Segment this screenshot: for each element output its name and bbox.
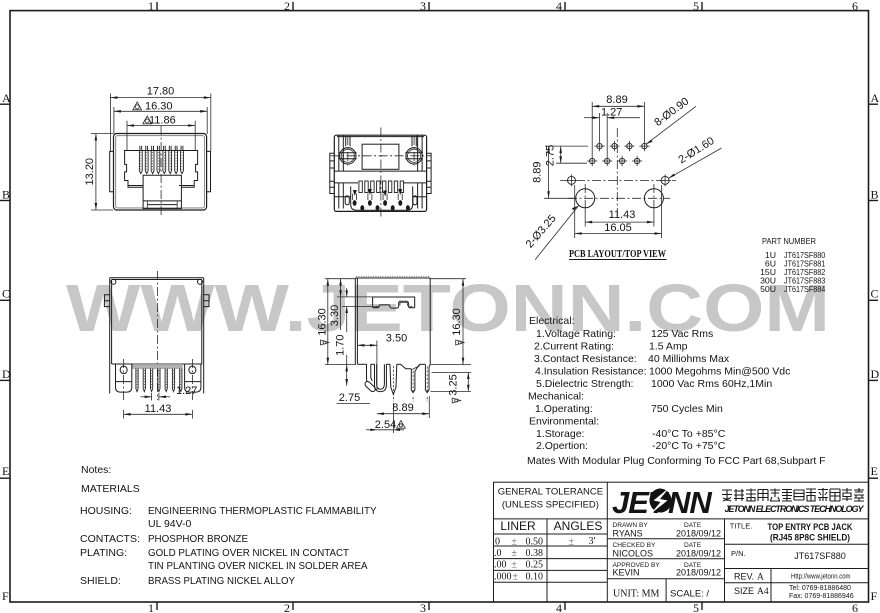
svg-text:1000 Vac Rms 60Hz,1Min: 1000 Vac Rms 60Hz,1Min [651,378,772,390]
svg-text:(UNLESS SPECIFIED): (UNLESS SPECIFIED) [502,500,599,511]
svg-text:CONTACTS:: CONTACTS: [80,533,140,545]
svg-text:Electrical:: Electrical: [529,315,575,327]
svg-text:Notes:: Notes: [81,464,111,476]
svg-text:Mechanical:: Mechanical: [528,391,584,403]
svg-text:E: E [871,464,878,478]
svg-text:C: C [871,287,879,301]
svg-text:NN: NN [668,485,712,520]
svg-text:16.05: 16.05 [604,222,632,234]
svg-text:3.Contact Resistance:: 3.Contact Resistance: [534,353,637,365]
svg-text:Http://www.jetonn.com: Http://www.jetonn.com [791,574,851,581]
svg-text:16.30: 16.30 [451,308,463,336]
svg-text:GENERAL TOLERANCE: GENERAL TOLERANCE [498,487,603,498]
svg-text:TITLE.: TITLE. [730,522,753,531]
svg-text:3.50: 3.50 [386,333,407,345]
svg-text:SIZE: SIZE [734,586,754,596]
svg-text:8.89: 8.89 [532,161,544,182]
svg-text:13.20: 13.20 [84,158,96,186]
svg-text:11.43: 11.43 [145,403,172,415]
svg-text:2018/09/12: 2018/09/12 [676,568,721,578]
svg-text:-20°C To +75°C: -20°C To +75°C [652,440,726,452]
svg-text:1.Operating:: 1.Operating: [535,403,593,415]
svg-text:.00: .00 [494,560,507,571]
svg-text:11.86: 11.86 [149,114,176,126]
svg-text:±: ± [513,572,519,583]
svg-text:-40°C To +85°C: -40°C To +85°C [652,428,726,440]
svg-text:1.Storage:: 1.Storage: [536,428,584,440]
svg-text:3.25: 3.25 [448,374,460,395]
svg-text:MATERIALS: MATERIALS [81,483,140,495]
svg-text:±: ± [511,548,517,559]
svg-text:NICOLOS: NICOLOS [613,549,654,559]
svg-text:UNIT: MM: UNIT: MM [613,589,660,600]
svg-text:±: ± [511,537,517,548]
svg-text:0.38: 0.38 [526,548,544,559]
svg-text:ENGINEERING THERMOPLASTIC FLAM: ENGINEERING THERMOPLASTIC FLAMMABILITY [148,505,377,517]
svg-text:Tel: 0769-81886480: Tel: 0769-81886480 [789,585,851,592]
svg-text:50U: 50U [760,284,776,294]
svg-text:1.70: 1.70 [335,334,347,355]
svg-text:8.89: 8.89 [392,402,413,414]
svg-text:2: 2 [284,601,290,613]
svg-text:2.54: 2.54 [375,419,396,431]
svg-text:0.50: 0.50 [526,537,544,548]
svg-text:4: 4 [556,601,562,613]
svg-text:RYANS: RYANS [613,529,643,539]
svg-text:F: F [2,589,9,603]
svg-text:2018/09/12: 2018/09/12 [676,549,721,559]
svg-text:GOLD PLATING OVER NICKEL IN CO: GOLD PLATING OVER NICKEL IN CONTACT [148,547,350,559]
svg-text:1: 1 [148,601,154,613]
svg-text:Mates With Modular Plug Confor: Mates With Modular Plug Conforming To FC… [527,455,826,467]
svg-text:F: F [871,589,878,603]
svg-text:750 Cycles Min: 750 Cycles Min [651,403,723,415]
svg-text:BRASS PLATING NICKEL ALLOY: BRASS PLATING NICKEL ALLOY [148,575,295,587]
svg-text:B: B [2,188,10,202]
svg-text:4: 4 [556,0,562,13]
svg-text:16.30: 16.30 [316,308,328,336]
svg-text:2018/09/12: 2018/09/12 [676,529,721,539]
svg-text:1.Voltage Rating:: 1.Voltage Rating: [536,328,616,340]
svg-text:WWW.JETONN.COM: WWW.JETONN.COM [66,271,830,346]
svg-text:(RJ45 8P8C SHIELD): (RJ45 8P8C SHIELD) [770,533,850,543]
svg-text:KEVIN: KEVIN [613,568,640,578]
svg-text:TOP ENTRY PCB JACK: TOP ENTRY PCB JACK [768,522,853,532]
svg-text:1.27: 1.27 [176,385,197,397]
svg-text:A: A [871,91,880,105]
svg-text:PCB LAYOUT/TOP VIEW: PCB LAYOUT/TOP VIEW [569,249,666,260]
svg-text:1.5 Amp: 1.5 Amp [649,341,688,353]
svg-text:TIN PLANTING OVER NICKEL IN SO: TIN PLANTING OVER NICKEL IN SOLDER AREA [148,560,368,572]
svg-text:0.25: 0.25 [526,560,544,571]
svg-text:6: 6 [852,0,858,13]
svg-text:±: ± [569,537,575,548]
svg-text:1.27: 1.27 [601,106,622,118]
svg-text:125 Vac Rms: 125 Vac Rms [651,328,713,340]
svg-text:JT617SF880: JT617SF880 [794,551,846,561]
svg-text:2: 2 [284,0,290,13]
svg-text:A: A [757,573,764,583]
svg-text:3′: 3′ [589,536,596,547]
svg-text:JT617SF884: JT617SF884 [784,284,825,294]
svg-text:SHIELD:: SHIELD: [80,575,121,587]
svg-text:SCALE: /: SCALE: / [670,589,709,600]
svg-text:11.43: 11.43 [609,209,636,221]
svg-text:1000 Megohms Min@500 Vdc: 1000 Megohms Min@500 Vdc [649,366,790,378]
svg-text:5.Dielectric Strength:: 5.Dielectric Strength: [536,378,633,390]
svg-text:0.10: 0.10 [526,572,544,583]
svg-text:UL 94V-0: UL 94V-0 [148,518,192,530]
svg-text:4.Insulation Resistance:: 4.Insulation Resistance: [535,366,646,378]
svg-text:2.Current Rating:: 2.Current Rating: [534,341,614,353]
svg-text:5: 5 [693,601,699,613]
svg-text:REV.: REV. [734,572,754,582]
svg-text:D: D [2,367,11,381]
svg-text:LINER: LINER [500,519,536,533]
svg-text:D: D [871,367,880,381]
svg-text:B: B [871,188,879,202]
svg-text:2.75: 2.75 [545,145,557,166]
svg-text:Environmental:: Environmental: [529,416,599,428]
svg-text:1: 1 [148,0,154,13]
svg-text:3: 3 [420,601,426,613]
svg-text:6: 6 [852,601,858,613]
svg-text:PHOSPHOR BRONZE: PHOSPHOR BRONZE [148,533,248,545]
svg-text:8.89: 8.89 [606,94,627,106]
svg-text:16.30: 16.30 [145,100,173,112]
svg-text:3: 3 [420,0,426,13]
svg-text:P/N.: P/N. [731,549,746,558]
svg-text:.0: .0 [494,548,502,559]
svg-text:ANGLES: ANGLES [554,519,603,533]
svg-text:3.30: 3.30 [329,305,341,326]
svg-text:0: 0 [495,537,500,548]
svg-text:17.80: 17.80 [147,86,175,98]
svg-text:E: E [2,464,9,478]
svg-text:±: ± [511,560,517,571]
svg-text:2.75: 2.75 [339,392,360,404]
svg-text:Fax: 0769-81886946: Fax: 0769-81886946 [789,593,854,600]
svg-text:A: A [2,91,11,105]
svg-text:A4: A4 [757,587,769,597]
svg-text:JETONN ELECTRONICS TECHNOLOGY: JETONN ELECTRONICS TECHNOLOGY [725,504,865,514]
svg-text:.000: .000 [494,572,512,583]
svg-text:HOUSING:: HOUSING: [80,505,132,517]
svg-text:PLATING:: PLATING: [80,547,127,559]
svg-text:5: 5 [693,0,699,13]
svg-text:40 Milliohms Max: 40 Milliohms Max [648,353,730,365]
svg-text:2.Opertion:: 2.Opertion: [536,440,588,452]
svg-text:C: C [2,287,10,301]
svg-text:PART NUMBER: PART NUMBER [762,236,816,246]
